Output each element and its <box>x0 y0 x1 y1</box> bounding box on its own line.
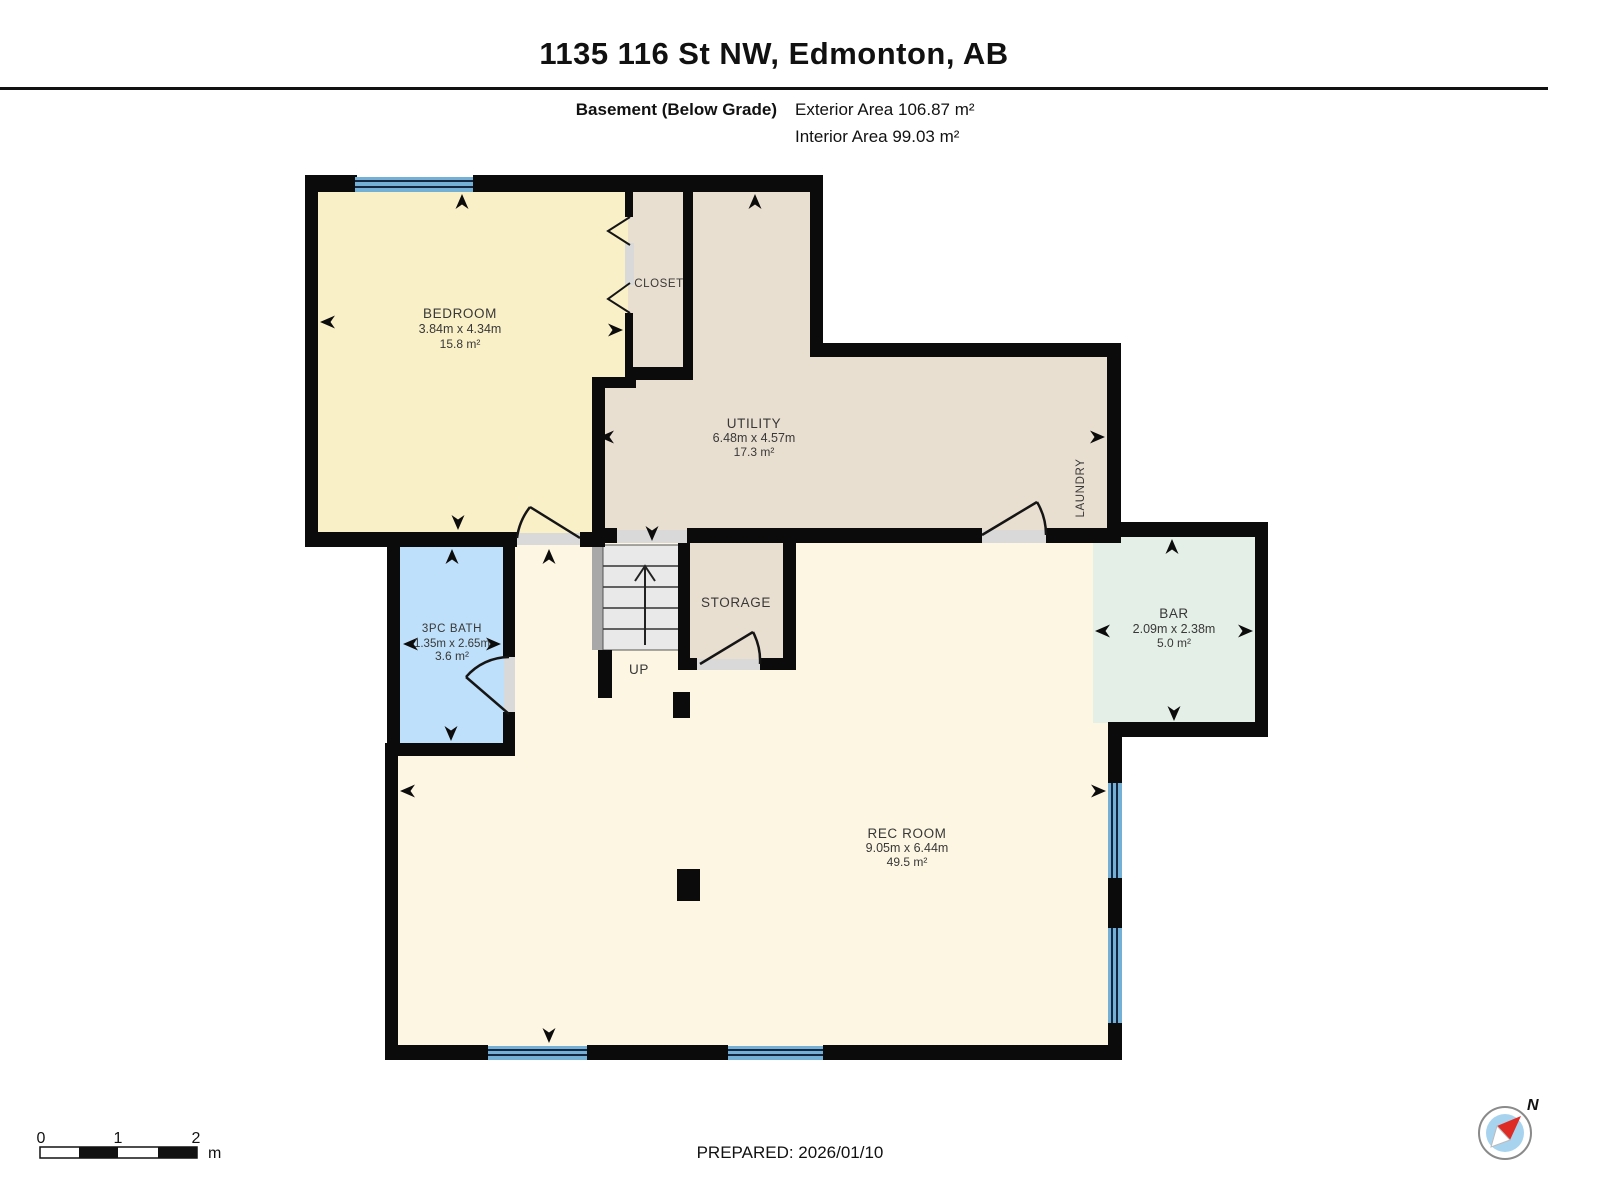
rec-room-window-bottom-right <box>728 1046 823 1060</box>
bedroom-window <box>355 177 473 192</box>
bar-area: 5.0 m² <box>1157 636 1191 650</box>
laundry-label: LAUNDRY <box>1075 459 1087 518</box>
rec-room-area: 49.5 m² <box>887 855 928 869</box>
bath-label: 3PC BATH <box>422 623 482 635</box>
rec-room-label: REC ROOM <box>867 826 946 841</box>
scale-tick-1: 1 <box>114 1130 123 1147</box>
bar-dims: 2.09m x 2.38m <box>1133 622 1216 636</box>
closet-label: CLOSET <box>634 278 684 290</box>
rec-room-window-right-upper <box>1108 783 1122 878</box>
bedroom-floor <box>310 180 630 540</box>
scale-bar: 0 1 2 m <box>37 1130 222 1162</box>
bar-label: BAR <box>1159 606 1189 621</box>
bedroom-area: 15.8 m² <box>440 337 481 351</box>
floorplan-page: 1135 116 St NW, Edmonton, AB Basement (B… <box>0 0 1600 1200</box>
scale-tick-2: 2 <box>192 1130 201 1147</box>
utility-dims: 6.48m x 4.57m <box>713 431 796 445</box>
utility-label: UTILITY <box>727 416 781 431</box>
rec-room-window-bottom-left <box>488 1046 587 1060</box>
staircase <box>592 545 687 650</box>
prepared-date: PREPARED: 2026/01/10 <box>697 1143 884 1162</box>
rec-room-window-right-lower <box>1108 928 1122 1023</box>
storage-label: STORAGE <box>701 595 771 610</box>
utility-area: 17.3 m² <box>734 445 775 459</box>
scale-tick-0: 0 <box>37 1130 46 1147</box>
bedroom-dims: 3.84m x 4.34m <box>419 322 502 336</box>
floorplan-drawing: BEDROOM 3.84m x 4.34m 15.8 m² CLOSET UTI… <box>0 0 1600 1200</box>
compass-icon: N <box>1479 1097 1539 1159</box>
bedroom-label: BEDROOM <box>423 306 497 321</box>
compass-north-label: N <box>1527 1097 1539 1114</box>
scale-unit: m <box>208 1145 221 1162</box>
bath-area: 3.6 m² <box>435 649 469 663</box>
support-post <box>677 869 700 901</box>
rec-room-dims: 9.05m x 6.44m <box>866 841 949 855</box>
stairs-up-label: UP <box>629 662 649 677</box>
